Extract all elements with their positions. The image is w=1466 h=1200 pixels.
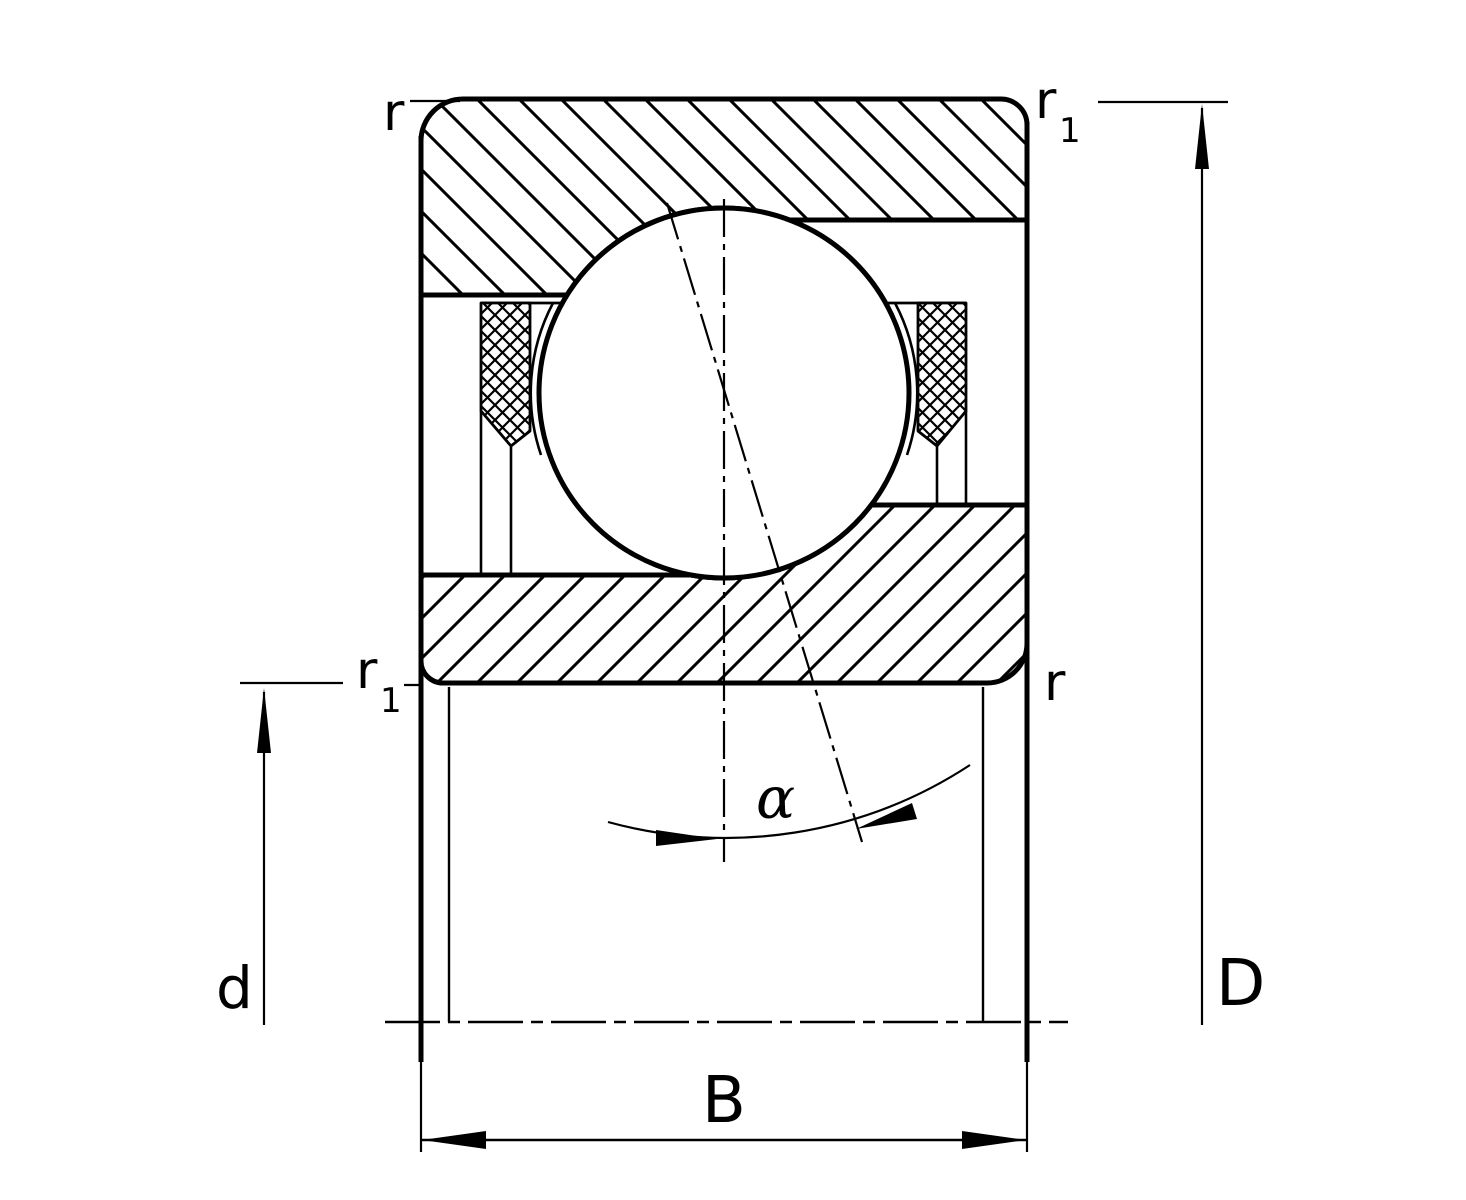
dimension-d: d	[216, 683, 343, 1025]
label-width: B	[702, 1064, 746, 1138]
cage-section-left-hatch	[481, 303, 530, 446]
cage-section-right-hatch	[918, 303, 966, 446]
label-r1-mid-left: r	[356, 641, 378, 701]
label-outside-diameter: D	[1216, 947, 1265, 1021]
label-bore-diameter: d	[216, 954, 253, 1022]
bearing-cross-section-diagram: α d D B r r 1 r 1 r	[0, 0, 1466, 1200]
label-contact-angle: α	[756, 764, 795, 832]
label-r1-mid-left-sub: 1	[380, 681, 402, 721]
dimension-D: D	[1098, 102, 1265, 1025]
label-r1-top-right: r	[1035, 71, 1057, 131]
label-r-top-left: r	[383, 83, 405, 143]
label-r-mid-right: r	[1044, 653, 1066, 713]
B-arrowhead-right	[962, 1131, 1026, 1149]
d-arrowhead	[257, 688, 271, 753]
dimension-B: B	[422, 1064, 1026, 1149]
alpha-arrowhead-left	[656, 830, 717, 846]
bore-chamfer-lines	[449, 687, 983, 1022]
B-arrowhead-left	[422, 1131, 486, 1149]
label-r1-top-right-sub: 1	[1059, 111, 1081, 151]
contact-angle-dimension: α	[608, 764, 970, 846]
D-arrowhead	[1195, 104, 1209, 169]
drawing-canvas: α d D B r r 1 r 1 r	[0, 0, 1466, 1200]
